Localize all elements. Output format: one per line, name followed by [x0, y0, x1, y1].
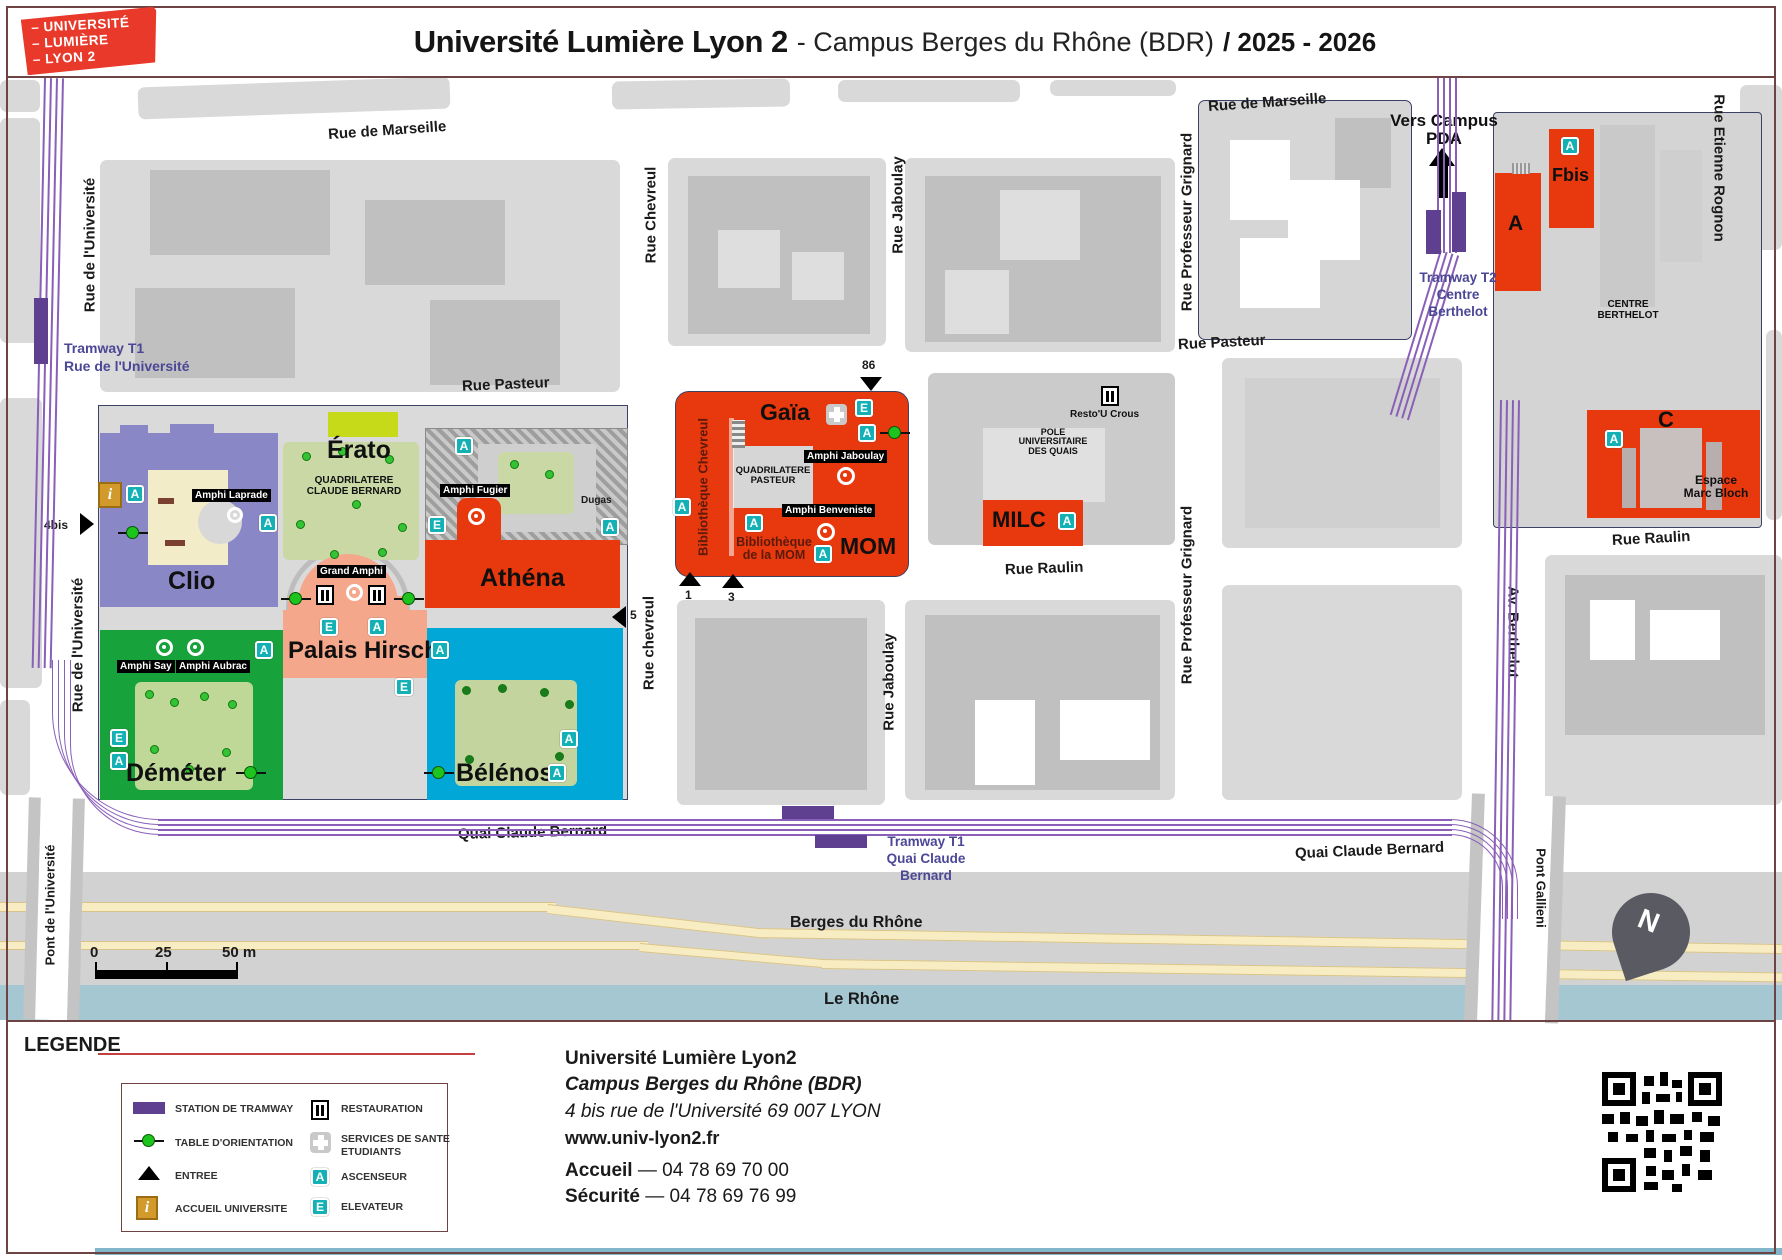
building-shape [1060, 700, 1150, 760]
amphi-marker-icon [468, 508, 485, 525]
city-block [0, 80, 40, 112]
legend-elevateur-icon: E [311, 1198, 329, 1216]
entrance-5-label: 5 [630, 608, 637, 622]
grand-amphi-label: Grand Amphi [317, 565, 386, 578]
orientation-table-icon [236, 766, 266, 780]
elevator-a-icon: A [1605, 430, 1623, 448]
elevator-a-icon: A [259, 514, 277, 532]
building-detail [158, 498, 174, 504]
stairs-icon [732, 420, 745, 448]
pont-universite-label: Pont de l'Université [43, 845, 58, 966]
street-marseille-label: Rue de Marseille [328, 118, 447, 143]
building-shape [695, 618, 867, 790]
street-quai-label: Quai Claude Bernard [1295, 839, 1445, 862]
pole-quais-label: POLE UNIVERSITAIRE DES QUAIS [1013, 428, 1093, 456]
legend-accueil-label: ACCUEIL UNIVERSITE [175, 1203, 287, 1216]
entrance-icon [80, 513, 94, 535]
elevator-a-icon: A [368, 618, 386, 636]
building-erato [328, 412, 398, 437]
amphi-marker-icon [837, 467, 855, 485]
bibliotheque-chevreul-label: Bibliothèque Chevreul [696, 418, 711, 556]
amphi-marker-icon [187, 639, 204, 656]
clio-label: Clio [168, 568, 215, 594]
building-shape [718, 230, 780, 288]
orientation-table-icon [281, 592, 311, 606]
erato-label: Érato [327, 437, 391, 463]
scale-tick [95, 962, 97, 970]
street-rognon-label: Rue Etienne Rognon [1711, 94, 1728, 242]
berges-path [0, 902, 556, 912]
tram-station [782, 806, 834, 819]
orientation-table-icon [424, 766, 454, 780]
palais-hirsch-label: Palais Hirsch [288, 638, 439, 663]
title-campus: - Campus Berges du Rhône (BDR) [797, 27, 1214, 58]
elevator-a-icon: A [1561, 137, 1579, 155]
tram-t2-label: Tramway T2 Centre Berthelot [1408, 270, 1508, 321]
entrance-icon [722, 574, 744, 588]
contact-accueil-phone: — 04 78 69 70 00 [638, 1160, 789, 1181]
street-grignard-label: Rue Professeur Grignard [1179, 506, 1196, 684]
building-shape [150, 170, 330, 255]
legend-entree-icon [138, 1166, 160, 1180]
river-label: Le Rhône [824, 990, 899, 1009]
building-shape [1590, 600, 1635, 660]
city-block [1766, 330, 1782, 520]
tram-station [1452, 192, 1466, 252]
scale-bar [95, 970, 238, 979]
elevator-e-icon: E [428, 516, 446, 534]
city-block [838, 80, 1020, 102]
building-shape [945, 270, 1009, 334]
building-shape [792, 252, 844, 300]
contact-accueil-label: Accueil [565, 1160, 633, 1181]
street-jaboulay-label: Rue Jaboulay [881, 633, 898, 731]
bibliotheque-mom-label: Bibliothèque de la MOM [733, 536, 815, 562]
elevator-a-icon: A [431, 641, 449, 659]
building-detail [165, 540, 185, 546]
contact-securite-label: Sécurité [565, 1186, 640, 1207]
building-detail [120, 425, 148, 434]
legend-ascenseur-icon: A [311, 1168, 329, 1186]
scale-mid: 25 [155, 944, 172, 961]
university-logo: – UNIVERSITÉ – LUMIÈRE – LYON 2 [20, 6, 159, 75]
scale-tick [166, 962, 168, 970]
gaia-label: Gaïa [760, 400, 810, 424]
elevator-a-icon: A [814, 545, 832, 563]
street-raulin-label: Rue Raulin [1005, 559, 1084, 579]
contact-name: Université Lumière Lyon2 [565, 1048, 797, 1070]
legend-elevateur-label: ELEVATEUR [341, 1201, 403, 1214]
athena-label: Athéna [480, 565, 565, 591]
pont-gallieni-label: Pont Gallieni [1534, 848, 1549, 927]
milc-label: MILC [992, 508, 1046, 531]
legend-accueil-icon: i [136, 1196, 158, 1220]
legend-orientation-label: TABLE D'ORIENTATION [175, 1137, 293, 1150]
legend-entree-label: ENTREE [175, 1170, 218, 1183]
contact-address: 4 bis rue de l'Université 69 007 LYON [565, 1101, 881, 1123]
building-shape [1660, 150, 1702, 262]
city-block [1222, 585, 1462, 800]
building-shape [365, 200, 505, 285]
contact-campus: Campus Berges du Rhône (BDR) [565, 1074, 862, 1096]
legend-orientation-icon [134, 1134, 164, 1148]
legend-station-label: STATION DE TRAMWAY [175, 1103, 293, 1116]
street-chevreul-label: Rue Chevreul [643, 167, 660, 264]
centre-berthelot-label: CENTRE BERTHELOT [1588, 300, 1668, 321]
entrance-1-label: 1 [685, 588, 692, 602]
map-bottom-divider [8, 1020, 1774, 1022]
page-title: Université Lumière Lyon 2 - Campus Berge… [300, 20, 1490, 64]
legend-restauration-icon [311, 1100, 329, 1120]
amphi-marker-icon [227, 507, 243, 523]
elevator-a-icon: A [1058, 512, 1076, 530]
amphi-marker-icon [817, 523, 835, 541]
orientation-table-icon [118, 526, 148, 540]
street-raulin-label: Rue Raulin [1612, 528, 1691, 549]
elevator-a-icon: A [673, 498, 691, 516]
entrance-icon [679, 572, 701, 586]
accueil-universite-icon: i [98, 482, 122, 508]
street-grignard-label: Rue Professeur Grignard [1179, 133, 1196, 311]
garden [498, 452, 574, 514]
entrance-icon [860, 377, 882, 391]
elevator-a-icon: A [745, 514, 763, 532]
contact-securite-phone: — 04 78 69 76 99 [645, 1186, 796, 1207]
mom-label: MOM [840, 534, 896, 558]
elevator-a-icon: A [126, 485, 144, 503]
restaurant-icon [1101, 386, 1119, 406]
entrance-3-label: 3 [728, 590, 735, 604]
city-block [0, 700, 30, 795]
building-shape [1622, 448, 1636, 508]
amphi-marker-icon [156, 639, 173, 656]
building-shape [1240, 238, 1320, 308]
building-shape [1230, 140, 1290, 220]
espace-marc-bloch-label: Espace Marc Bloch [1678, 474, 1754, 499]
elevator-a-icon: A [560, 730, 578, 748]
building-fbis-label: Fbis [1552, 166, 1589, 185]
tram-t1-quai-label: Tramway T1 Quai Claude Bernard [876, 834, 976, 885]
footer-accent-bar [95, 1248, 1782, 1255]
street-jaboulay-label: Rue Jaboulay [890, 156, 907, 254]
contact-accueil: Accueil — 04 78 69 70 00 [565, 1160, 789, 1182]
building-c-label: C [1658, 408, 1674, 431]
elevator-e-icon: E [855, 399, 873, 417]
building-shape [1650, 610, 1720, 660]
dugas-label: Dugas [581, 495, 612, 506]
building-shape [430, 300, 560, 385]
orientation-table-icon [394, 592, 424, 606]
scale-tick [236, 962, 238, 970]
elevator-e-icon: E [320, 618, 338, 636]
amphi-benveniste-label: Amphi Benveniste [782, 504, 875, 517]
campus-map-page: – UNIVERSITÉ – LUMIÈRE – LYON 2 Universi… [0, 0, 1782, 1260]
qr-code [1602, 1072, 1722, 1192]
berges-label: Berges du Rhône [790, 914, 922, 932]
amphi-laprade-label: Amphi Laprade [192, 489, 271, 502]
health-services-icon [826, 404, 847, 425]
building-shape [1600, 125, 1655, 307]
tram-station [34, 298, 48, 364]
contact-securite: Sécurité — 04 78 69 76 99 [565, 1186, 796, 1208]
legend-restauration-label: RESTAURATION [341, 1103, 423, 1116]
elevator-e-icon: E [395, 678, 413, 696]
legend-sante-icon [310, 1132, 331, 1153]
scale-end: 50 m [222, 944, 256, 961]
belenos-label: Bélénos [456, 760, 553, 786]
amphi-marker-icon [346, 584, 363, 601]
elevator-a-icon: A [548, 764, 566, 782]
orientation-table-icon [880, 426, 910, 440]
restaurant-icon [316, 585, 334, 605]
city-block [1050, 80, 1176, 96]
contact-website: www.univ-lyon2.fr [565, 1128, 719, 1149]
entrance-icon [612, 606, 626, 628]
street-chevreul-label: Rue chevreul [641, 596, 658, 690]
amphi-fugier-label: Amphi Fugier [440, 484, 510, 497]
scale-zero: 0 [90, 944, 98, 961]
city-block [612, 78, 790, 109]
tram-station [1426, 210, 1441, 254]
building-a-label: A [1508, 213, 1523, 235]
street-pasteur-label: Rue Pasteur [1178, 332, 1266, 354]
title-university: Université Lumière Lyon 2 [414, 24, 788, 60]
legend-sante-label: SERVICES DE SANTE ETUDIANTS [341, 1133, 450, 1158]
header-divider [8, 76, 1774, 78]
quad-pasteur-label: QUADRILATERE PASTEUR [733, 466, 813, 486]
restaurant-icon [368, 585, 386, 605]
building-shape [1000, 190, 1080, 260]
building-detail [170, 424, 214, 433]
legend-station-icon [133, 1102, 165, 1114]
quad-claude-bernard-label: QUADRILATERE CLAUDE BERNARD [298, 476, 410, 497]
street-universite-label: Rue de l'Université [82, 178, 99, 312]
amphi-aubrac-label: Amphi Aubrac [176, 660, 250, 673]
building-shape [975, 700, 1035, 785]
legend-underline [98, 1053, 475, 1055]
amphi-jaboulay-label: Amphi Jaboulay [804, 450, 887, 463]
elevator-a-icon: A [601, 518, 619, 536]
entrance-86-label: 86 [862, 358, 875, 372]
building-detail [1512, 163, 1530, 174]
elevator-a-icon: A [455, 437, 473, 455]
tram-station [815, 835, 867, 848]
city-block [138, 77, 451, 120]
title-year: / 2025 - 2026 [1223, 27, 1376, 58]
resto-crous-label: Resto'U Crous [1070, 410, 1139, 421]
legend-ascenseur-label: ASCENSEUR [341, 1171, 407, 1184]
tram-t1-universite-label: Tramway T1 Rue de l'Université [64, 340, 189, 375]
elevator-a-icon: A [858, 424, 876, 442]
elevator-a-icon: A [255, 641, 273, 659]
